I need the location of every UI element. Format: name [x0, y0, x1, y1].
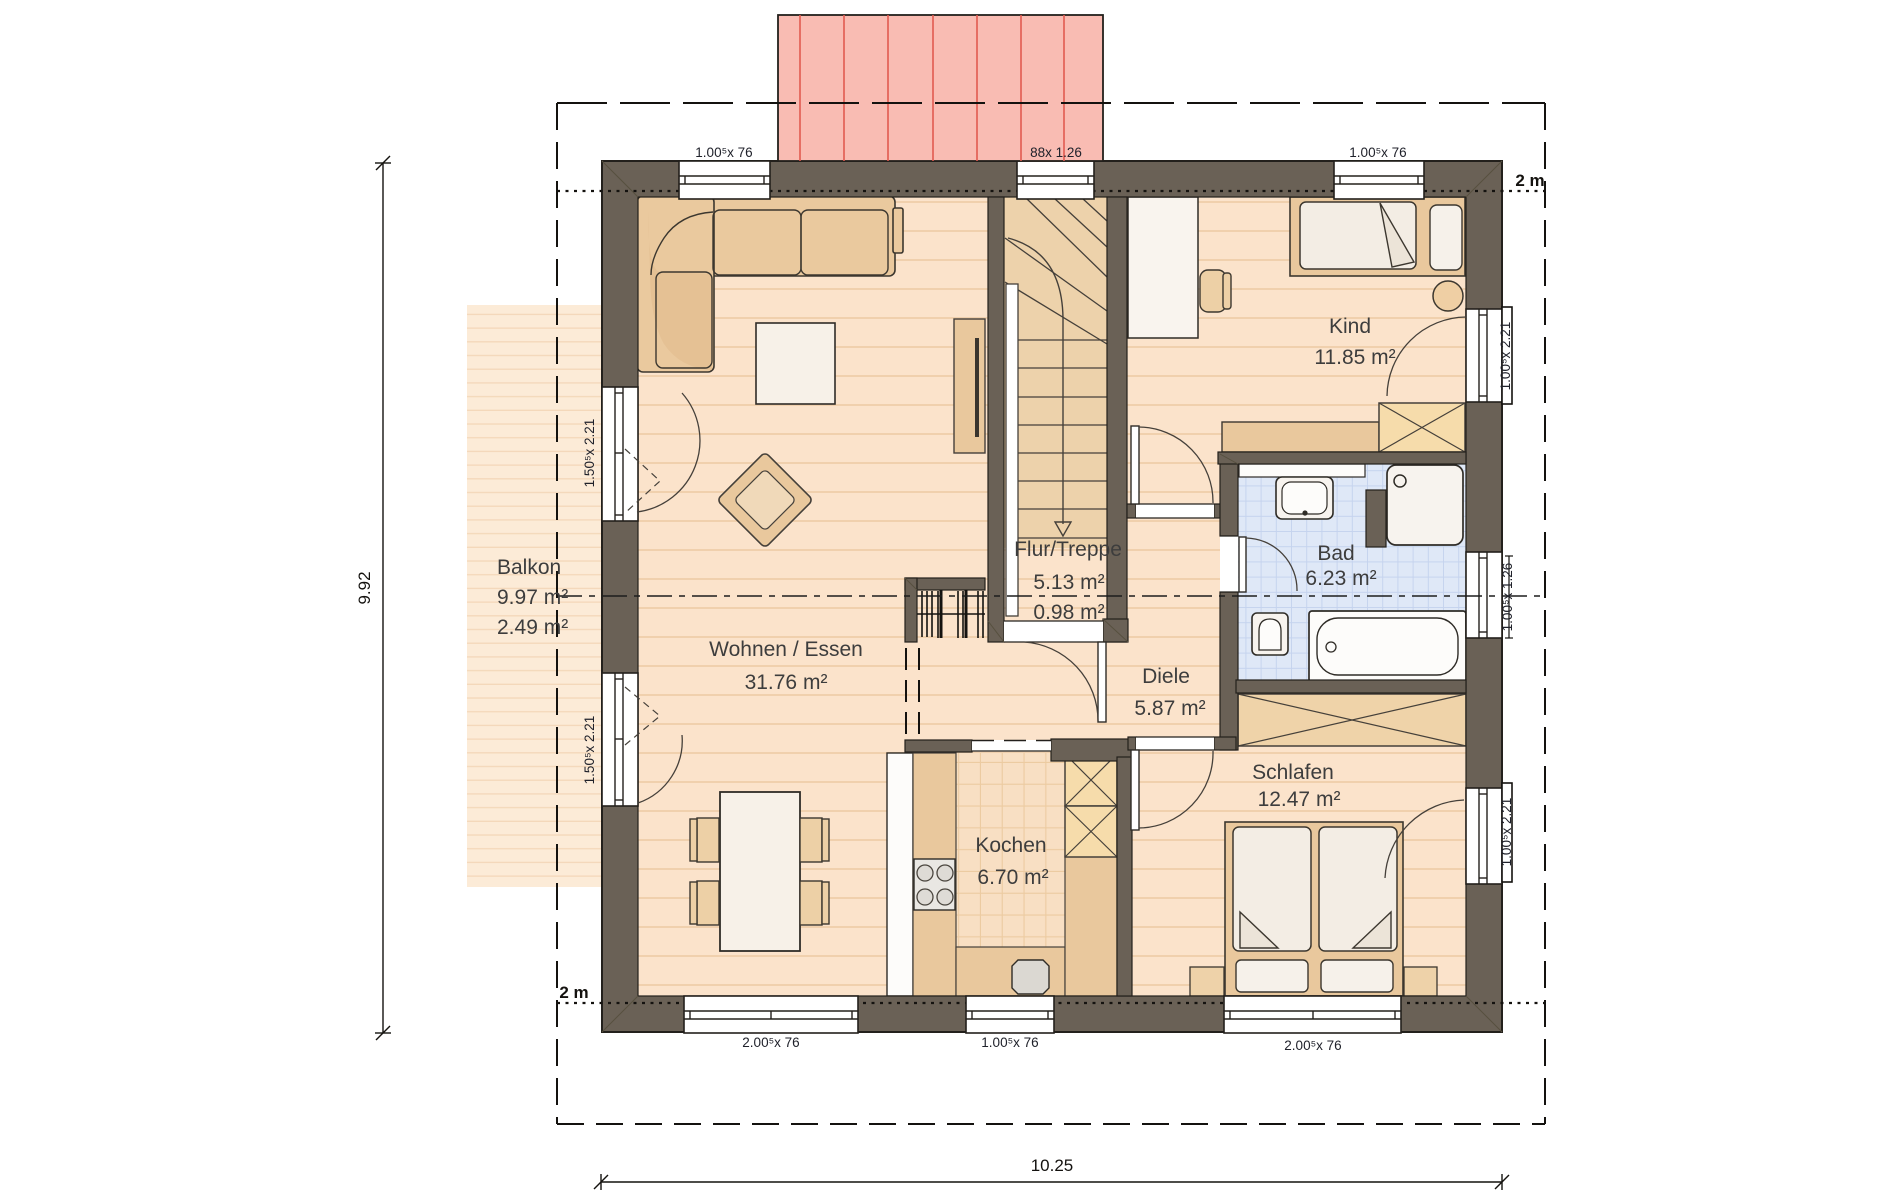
svg-text:5.87 m²: 5.87 m² — [1134, 697, 1205, 720]
svg-text:1.00⁵x 2.21: 1.00⁵x 2.21 — [1498, 322, 1513, 391]
svg-text:Schlafen: Schlafen — [1252, 761, 1334, 784]
svg-text:Wohnen / Essen: Wohnen / Essen — [709, 638, 863, 661]
svg-text:2.49 m²: 2.49 m² — [497, 616, 568, 639]
svg-text:0.98 m²: 0.98 m² — [1033, 601, 1104, 624]
svg-text:31.76 m²: 31.76 m² — [745, 671, 828, 694]
svg-text:9.97 m²: 9.97 m² — [497, 586, 568, 609]
svg-text:Bad: Bad — [1317, 542, 1354, 565]
svg-text:1.00⁵x 76: 1.00⁵x 76 — [695, 145, 752, 160]
svg-text:2 m: 2 m — [559, 983, 588, 1002]
svg-text:1.50⁵x 2.21: 1.50⁵x 2.21 — [582, 716, 597, 785]
svg-text:2.00⁵x 76: 2.00⁵x 76 — [742, 1035, 799, 1050]
svg-text:Kochen: Kochen — [975, 834, 1046, 857]
svg-text:11.85 m²: 11.85 m² — [1314, 346, 1395, 369]
svg-text:1.00⁵x 76: 1.00⁵x 76 — [1349, 145, 1406, 160]
svg-text:1.00⁵x 2.21: 1.00⁵x 2.21 — [1499, 798, 1514, 867]
svg-text:Flur/Treppe: Flur/Treppe — [1014, 538, 1122, 561]
svg-text:6.23 m²: 6.23 m² — [1305, 567, 1376, 590]
svg-text:2 m: 2 m — [1515, 171, 1544, 190]
svg-text:1.00⁵x 1.26: 1.00⁵x 1.26 — [1500, 563, 1515, 632]
svg-text:9.92: 9.92 — [355, 571, 374, 604]
svg-text:12.47 m²: 12.47 m² — [1258, 788, 1341, 811]
svg-text:1.00⁵x 76: 1.00⁵x 76 — [981, 1035, 1038, 1050]
svg-text:Diele: Diele — [1142, 665, 1190, 688]
svg-text:5.13 m²: 5.13 m² — [1033, 571, 1104, 594]
svg-text:10.25: 10.25 — [1031, 1156, 1074, 1175]
svg-text:6.70 m²: 6.70 m² — [977, 866, 1048, 889]
svg-text:1.50⁵x 2.21: 1.50⁵x 2.21 — [582, 419, 597, 488]
svg-text:2.00⁵x 76: 2.00⁵x 76 — [1284, 1038, 1341, 1053]
svg-text:Kind: Kind — [1329, 315, 1371, 338]
svg-text:Balkon: Balkon — [497, 556, 561, 579]
svg-text:88x 1.26: 88x 1.26 — [1030, 145, 1082, 160]
